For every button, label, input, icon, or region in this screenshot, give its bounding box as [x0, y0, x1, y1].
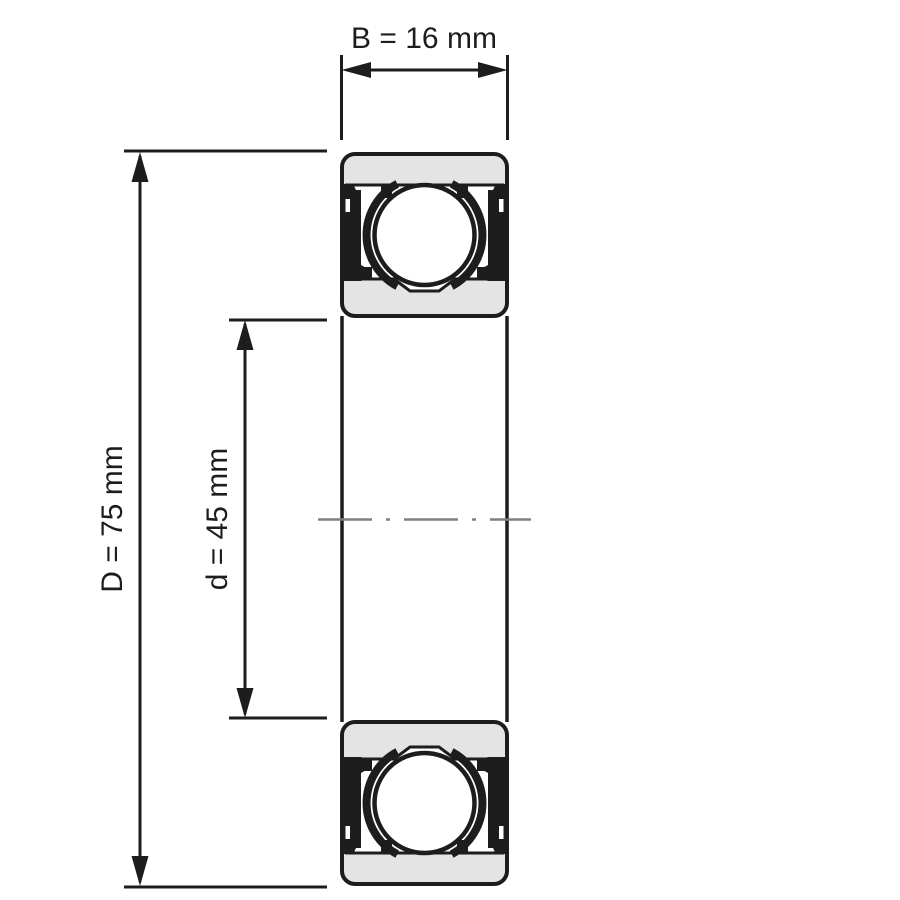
arrowhead-down: [132, 856, 149, 886]
dimension-B: B = 16 mm: [342, 22, 508, 140]
bearing-top-section: [342, 154, 507, 316]
arrowhead-down: [237, 688, 254, 718]
dimension-d-label: d = 45 mm: [201, 448, 234, 591]
arrowhead-right: [478, 62, 508, 78]
arrowhead-left: [342, 62, 372, 78]
arrowhead-up: [132, 152, 149, 182]
bearing-bottom-section: [342, 722, 507, 884]
bearing-drawing-page: B = 16 mm D = 75 mm d = 45 mm: [0, 0, 900, 900]
arrowhead-up: [237, 320, 254, 350]
dimension-B-label: B = 16 mm: [351, 22, 497, 55]
dimension-d: d = 45 mm: [201, 320, 327, 718]
dimension-D-label: D = 75 mm: [96, 445, 129, 593]
bearing-diagram: B = 16 mm D = 75 mm d = 45 mm: [0, 0, 900, 900]
